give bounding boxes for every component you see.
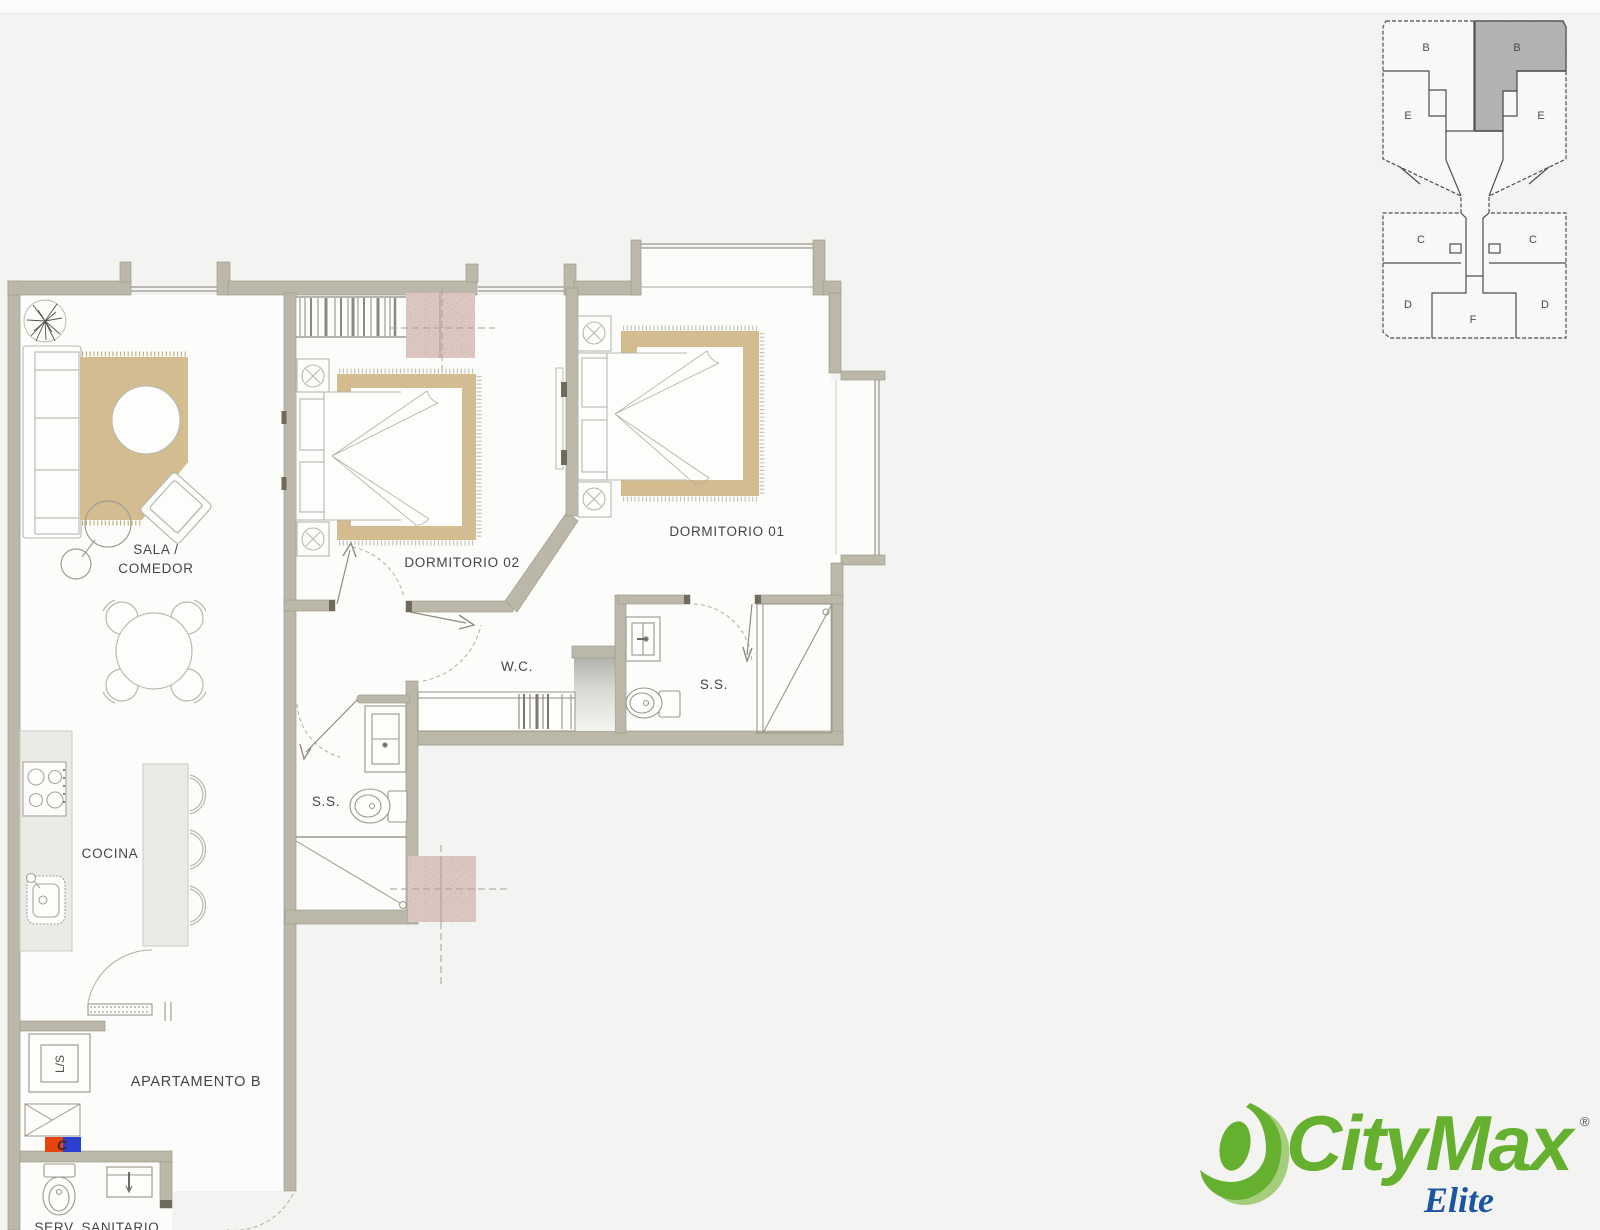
svg-text:Elite: Elite xyxy=(1423,1180,1494,1220)
svg-text:®: ® xyxy=(1580,1114,1590,1129)
svg-text:SALA /: SALA / xyxy=(133,542,178,557)
svg-text:E: E xyxy=(1404,110,1411,122)
svg-text:B: B xyxy=(1513,42,1520,54)
svg-text:D: D xyxy=(1404,299,1412,311)
svg-text:F: F xyxy=(1470,314,1477,326)
svg-text:C: C xyxy=(1417,234,1425,246)
svg-text:E: E xyxy=(1537,110,1544,122)
svg-text:L/S: L/S xyxy=(53,1055,67,1073)
svg-text:S.S.: S.S. xyxy=(700,677,728,692)
svg-text:COMEDOR: COMEDOR xyxy=(118,561,193,576)
svg-text:C: C xyxy=(57,1137,68,1153)
svg-text:CityMax: CityMax xyxy=(1286,1099,1577,1187)
svg-text:B: B xyxy=(1422,42,1429,54)
svg-text:COCINA: COCINA xyxy=(82,846,139,861)
svg-text:APARTAMENTO B: APARTAMENTO B xyxy=(131,1074,262,1090)
svg-text:S.S.: S.S. xyxy=(312,794,340,809)
svg-text:DORMITORIO 01: DORMITORIO 01 xyxy=(669,524,784,539)
svg-text:C: C xyxy=(1529,234,1537,246)
svg-text:SERV. SANITARIO: SERV. SANITARIO xyxy=(34,1220,159,1230)
svg-text:D: D xyxy=(1541,299,1549,311)
svg-text:DORMITORIO 02: DORMITORIO 02 xyxy=(404,555,519,570)
svg-text:W.C.: W.C. xyxy=(501,659,533,674)
